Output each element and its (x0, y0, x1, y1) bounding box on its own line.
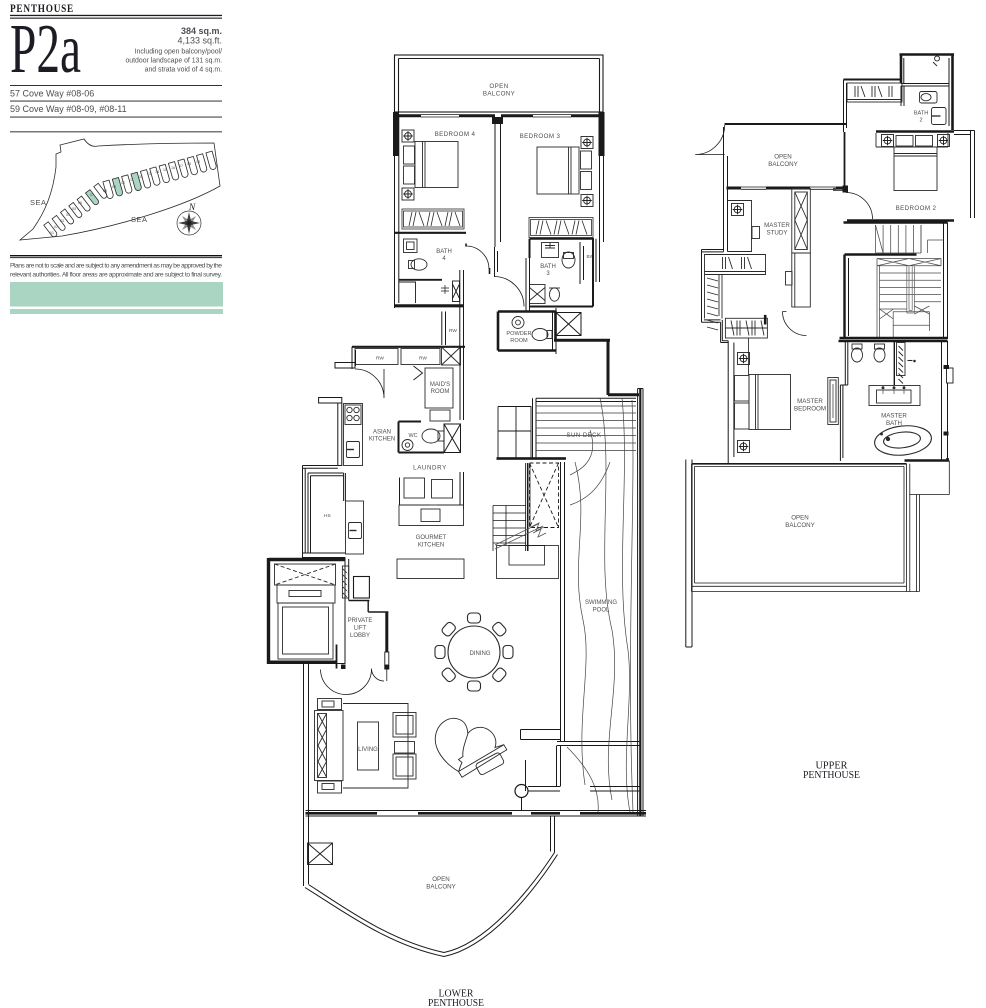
svg-text:DINING: DINING (470, 651, 491, 657)
svg-text:3: 3 (546, 271, 550, 277)
svg-text:POWDER: POWDER (506, 331, 531, 337)
svg-text:MASTER: MASTER (881, 413, 907, 420)
svg-text:13: 13 (147, 172, 151, 176)
svg-text:RW: RW (419, 356, 427, 362)
svg-text:OPEN: OPEN (791, 515, 809, 522)
svg-text:BEDROOM 2: BEDROOM 2 (896, 205, 937, 212)
svg-text:05: 05 (72, 207, 76, 211)
svg-text:BALCONY: BALCONY (426, 884, 456, 891)
svg-text:BEDROOM: BEDROOM (794, 406, 826, 413)
svg-text:ASIAN: ASIAN (373, 430, 391, 436)
svg-text:RW: RW (449, 328, 457, 334)
svg-text:SEA: SEA (30, 198, 47, 207)
svg-text:BEDROOM 3: BEDROOM 3 (520, 133, 561, 140)
svg-text:OPEN: OPEN (774, 154, 792, 161)
svg-text:OPEN: OPEN (489, 83, 508, 90)
svg-text:and strata void of 4 sq.m.: and strata void of 4 sq.m. (145, 67, 222, 74)
svg-text:BALCONY: BALCONY (785, 522, 815, 529)
svg-text:03: 03 (60, 219, 64, 223)
svg-text:ROOM: ROOM (431, 389, 450, 395)
svg-text:12: 12 (139, 175, 143, 179)
svg-text:OPEN: OPEN (432, 876, 450, 883)
svg-text:LOBBY: LOBBY (350, 633, 370, 639)
svg-text:N: N (188, 203, 196, 213)
svg-text:07: 07 (90, 193, 94, 197)
svg-text:09: 09 (112, 185, 116, 189)
svg-text:BATH: BATH (540, 264, 556, 270)
svg-text:POOL: POOL (593, 608, 610, 614)
svg-text:outdoor landscape of 131 sq.m.: outdoor landscape of 131 sq.m. (125, 58, 222, 65)
svg-text:08: 08 (103, 189, 107, 193)
svg-text:15: 15 (163, 168, 167, 172)
svg-text:4: 4 (442, 256, 446, 262)
svg-text:SEA: SEA (131, 215, 148, 224)
svg-text:Plans are not to scale and are: Plans are not to scale and are subject t… (10, 263, 222, 270)
svg-text:RW: RW (376, 356, 384, 362)
svg-text:BEDROOM 4: BEDROOM 4 (435, 131, 476, 138)
svg-text:WC: WC (409, 433, 418, 439)
svg-text:Including open balcony/pool/: Including open balcony/pool/ (135, 49, 222, 56)
svg-text:17: 17 (179, 164, 183, 168)
svg-text:PRIVATE: PRIVATE (348, 618, 373, 624)
svg-text:02: 02 (54, 225, 58, 229)
svg-text:384 sq.m.: 384 sq.m. (181, 26, 222, 36)
svg-text:PENTHOUSE: PENTHOUSE (428, 998, 484, 1008)
svg-text:01: 01 (50, 231, 54, 235)
svg-text:KITCHEN: KITCHEN (418, 543, 444, 549)
svg-text:STUDY: STUDY (767, 230, 788, 237)
svg-text:2: 2 (919, 118, 922, 124)
svg-text:SWIMMING: SWIMMING (585, 600, 617, 606)
svg-text:KITCHEN: KITCHEN (369, 437, 395, 443)
svg-text:11: 11 (130, 178, 134, 182)
svg-text:SUN DECK: SUN DECK (566, 433, 601, 439)
svg-text:MASTER: MASTER (797, 398, 823, 405)
svg-text:PENTHOUSE: PENTHOUSE (803, 770, 860, 781)
svg-text:MAID'S: MAID'S (430, 382, 450, 388)
svg-text:14: 14 (155, 170, 159, 174)
svg-text:BATH: BATH (914, 111, 929, 117)
svg-text:04: 04 (66, 213, 70, 217)
svg-text:16: 16 (171, 166, 175, 170)
svg-text:MASTER: MASTER (764, 222, 790, 229)
svg-text:BALCONY: BALCONY (483, 91, 515, 98)
svg-text:BALCONY: BALCONY (768, 161, 798, 168)
svg-text:GOURMET: GOURMET (416, 535, 447, 541)
svg-text:HS: HS (324, 513, 331, 519)
svg-text:ROOM: ROOM (510, 338, 528, 344)
svg-text:BATH: BATH (436, 249, 452, 255)
svg-text:06: 06 (78, 201, 82, 205)
svg-text:LIVING: LIVING (358, 747, 378, 753)
svg-text:relevant authorities. All floo: relevant authorities. All floor areas ar… (10, 272, 222, 279)
svg-text:LAUNDRY: LAUNDRY (413, 465, 447, 472)
svg-text:P2a: P2a (10, 11, 81, 88)
svg-text:4,133 sq.ft.: 4,133 sq.ft. (177, 36, 222, 46)
svg-text:57 Cove Way #08-06: 57 Cove Way #08-06 (10, 89, 94, 99)
svg-text:19: 19 (196, 160, 200, 164)
svg-text:10: 10 (121, 181, 125, 185)
svg-text:59 Cove Way #08-09, #08-11: 59 Cove Way #08-09, #08-11 (10, 104, 127, 114)
svg-text:18: 18 (187, 162, 191, 166)
svg-text:LIFT: LIFT (354, 626, 367, 632)
